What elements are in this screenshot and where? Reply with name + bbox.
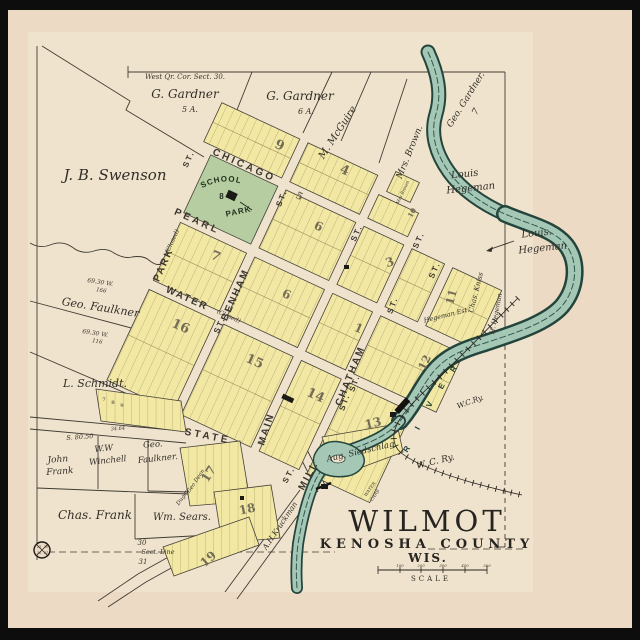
wilmot-plat-map: WILMOT KENOSHA COUNTY WIS. SCALE PUBLIC … [0, 0, 640, 640]
owner-john: John [45, 454, 68, 466]
owner-j-b-swenson: J. B. Swenson [61, 166, 167, 184]
annotation-100: 100 [396, 563, 404, 568]
owner-g-gardner: G. Gardner [151, 87, 220, 101]
park-block-number: 8 [219, 192, 224, 201]
map-city-title: WILMOT [348, 504, 505, 538]
owner-6-a: 6 A. [298, 107, 314, 116]
annotation-sect-line: Sect. Line [141, 548, 174, 556]
owner-wm-sears: Wm. Sears. [153, 512, 211, 523]
owner-geo: Geo. [143, 439, 163, 450]
block-number-7: 7 [102, 397, 106, 403]
owner-chas-frank: Chas. Frank [58, 508, 132, 522]
annotation-25: 25 [36, 545, 41, 549]
mill-building [321, 484, 328, 489]
annotation-400: 400 [460, 563, 469, 568]
map-county-title: KENOSHA COUNTY [320, 537, 535, 552]
annotation-200: 200 [416, 563, 425, 568]
annotation-31: 31 [44, 551, 48, 555]
annotation-west-qr-cor-sect-30: West Qr. Cor. Sect. 30. [145, 73, 225, 81]
owner-frank: Frank [45, 466, 74, 478]
owner-g-gardner: G. Gardner [266, 89, 335, 103]
owner-l-schmidt: L. Schmidt. [62, 377, 127, 390]
annotation-500: 500 [483, 563, 491, 568]
annotation-300: 300 [439, 563, 447, 568]
owner-w-w: W.W [94, 443, 115, 455]
annotation-34-64: 34.64 [111, 426, 126, 433]
annotation-30: 30 [138, 539, 147, 547]
block-number-8: 8 [111, 400, 115, 406]
owner-5-a: 5 A. [182, 105, 198, 114]
annotation-31: 31 [139, 558, 148, 566]
scale-label: SCALE [411, 575, 451, 583]
block-number-9: 9 [120, 403, 124, 409]
